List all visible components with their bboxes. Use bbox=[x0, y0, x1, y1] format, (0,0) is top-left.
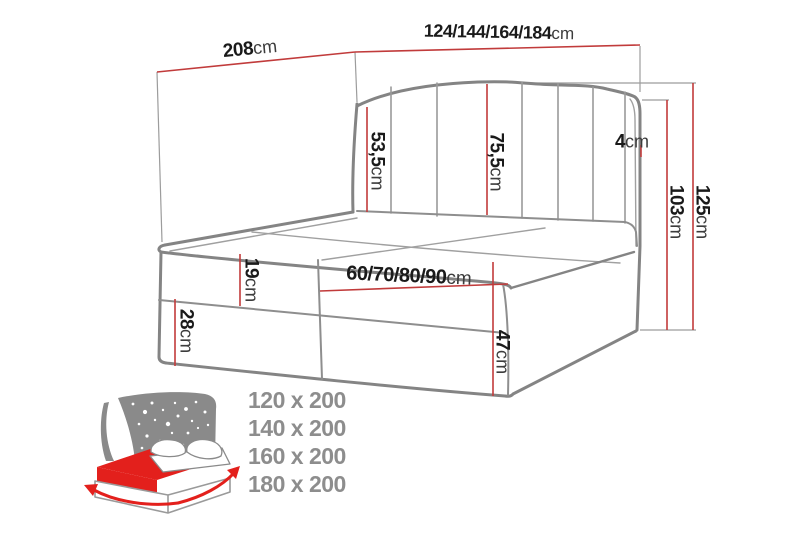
bed-dimension-diagram: 208cm 124/144/164/184cm 53,5cm 75,5cm 4c… bbox=[0, 0, 800, 533]
dim-half-width-label: 60/70/80/90cm bbox=[346, 263, 472, 288]
base-left-edge bbox=[159, 252, 166, 363]
bed-drawing bbox=[159, 82, 640, 397]
base-middle-seam bbox=[318, 260, 322, 379]
dim-width-label: 124/144/164/184cm bbox=[424, 22, 575, 43]
headboard-left-edge bbox=[353, 104, 357, 212]
dim-headboard-edge-label: 4cm bbox=[615, 133, 649, 152]
dim-base-total-height-label: 47cm bbox=[493, 330, 512, 374]
dim-mattress-thickness-label: 19cm bbox=[242, 258, 261, 302]
size-option: 180 x 200 bbox=[248, 470, 346, 498]
size-option: 120 x 200 bbox=[248, 386, 346, 414]
bed-size-icon bbox=[84, 392, 240, 513]
dim-base-lower-height-label: 28cm bbox=[177, 309, 196, 353]
mattress-back-edge bbox=[357, 211, 637, 246]
mattress-left-edge bbox=[165, 212, 353, 245]
icon-bedding bbox=[150, 440, 230, 472]
size-options-list: 120 x 200 140 x 200 160 x 200 180 x 200 bbox=[248, 386, 346, 498]
dim-headboard-center-height-label: 75,5cm bbox=[487, 132, 506, 191]
dim-back-height-label: 103cm bbox=[667, 185, 686, 239]
size-option: 140 x 200 bbox=[248, 414, 346, 442]
dim-total-height-label: 125cm bbox=[693, 185, 712, 239]
mattress-surface-seam bbox=[252, 232, 620, 263]
base-bottom-edge bbox=[166, 331, 636, 396]
base-horizontal-seam bbox=[159, 300, 505, 333]
dim-line-width bbox=[355, 45, 640, 52]
size-option: 160 x 200 bbox=[248, 442, 346, 470]
headboard-channels bbox=[391, 82, 625, 223]
dim-headboard-left-height-label: 53,5cm bbox=[368, 131, 387, 190]
mattress-left-piping bbox=[170, 218, 357, 251]
